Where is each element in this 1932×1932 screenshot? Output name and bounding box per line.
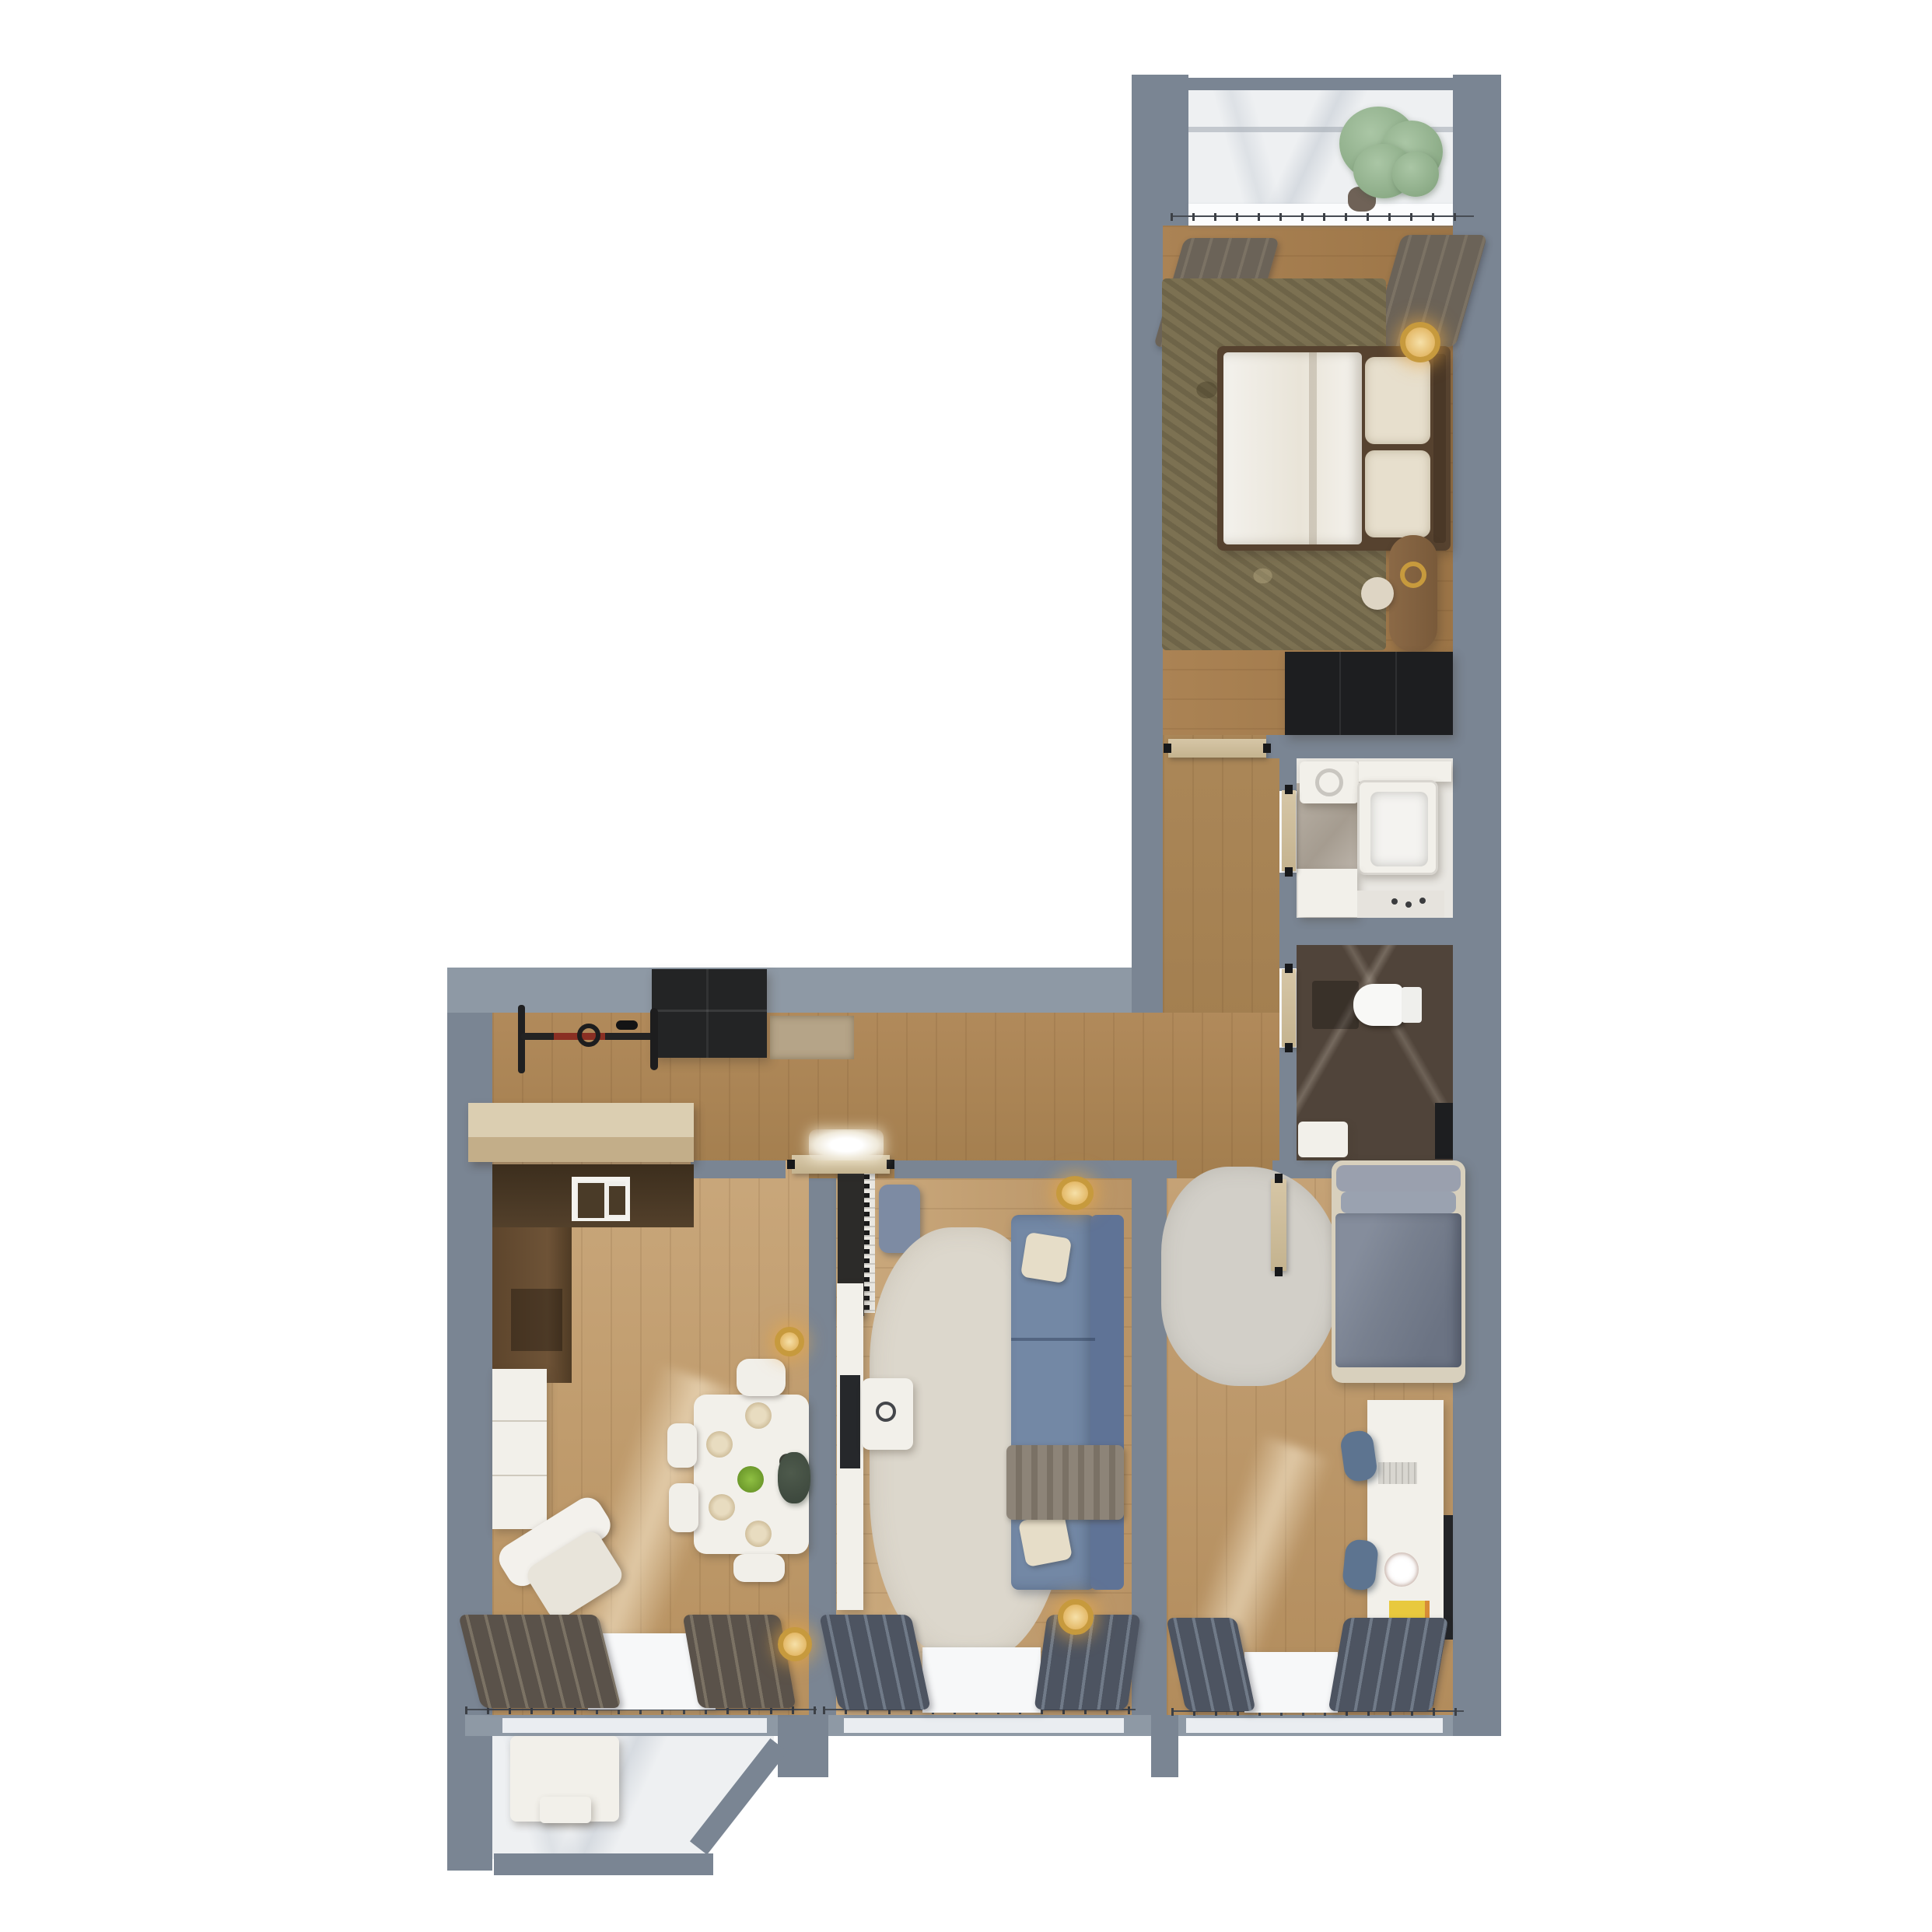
plate [709,1494,735,1521]
drawer-line [492,1475,547,1476]
desk-keyboard [1378,1462,1417,1484]
cooktop-pane [609,1186,625,1215]
bench-top [468,1103,694,1137]
balcony-bench-seat [540,1797,591,1823]
window-sill-bedroom2 [1244,1652,1338,1713]
wardrobe-seam [1339,652,1341,735]
faucet [1419,898,1426,904]
wall-bedroom1-south [1266,735,1453,758]
bathtub [1357,780,1438,875]
door-hinge [1285,964,1293,973]
wc-cabinet [1435,1103,1453,1159]
bed-headboard [1433,354,1446,543]
door-hinge [1275,1267,1283,1276]
door-bedroom2 [1271,1179,1286,1271]
plate [745,1521,772,1547]
washing-machine [1300,761,1359,803]
cabinet-seam [706,969,709,1058]
pendant-lamp-living [1056,1176,1094,1210]
vanity-stool [1361,577,1394,610]
table-decor [876,1402,896,1422]
floor-lamp-kitchen [778,1627,812,1661]
faucet [1405,901,1412,908]
coffee-table [862,1378,913,1450]
cooktop [572,1177,630,1221]
curtains-kitchen-right [682,1615,796,1708]
curtain-rail-bedroom1 [1171,213,1474,221]
plant-leaves [1392,152,1439,197]
drawer-line [492,1420,547,1422]
door-hinge [787,1160,795,1169]
shoe-bench [468,1103,694,1162]
table-plant [737,1466,764,1493]
bed-pillow [1365,357,1430,444]
floor-plan-canvas [0,0,1932,1932]
plate [745,1402,772,1429]
floor-lamp-living [1058,1599,1094,1635]
dining-foliage [778,1452,810,1503]
doormat [770,1016,854,1059]
curtains-bedroom2-right [1328,1618,1448,1711]
window-living [844,1718,1124,1733]
wardrobe-bedroom1 [1285,652,1453,735]
double-bed [1217,346,1451,551]
door-hinge [1285,1043,1293,1052]
bed2-duvet [1335,1213,1461,1367]
vanity-desk [1389,535,1437,652]
door-bedroom1 [1168,739,1266,758]
bathroom-cabinet [1298,869,1357,917]
door-hinge [1263,744,1271,753]
wc-sink [1298,1122,1348,1157]
bed-duvet [1223,352,1362,544]
wall-pillar-living-bedroom2 [1151,1715,1178,1777]
window-bedroom2 [1186,1718,1443,1733]
wardrobe-seam [1395,652,1397,735]
bike-pedals [577,1024,600,1047]
wall-mounted-bicycle [506,1002,670,1087]
sofa-pillow [1020,1232,1072,1283]
bed-pillow [1365,450,1430,537]
cooktop-pane [578,1183,604,1218]
piano-black-keys [864,1174,870,1310]
cabinet-dark-panel [511,1289,562,1351]
sofa-back [1090,1215,1124,1590]
kitchen-tall-cabinet [492,1227,572,1383]
dining-chair [733,1554,785,1582]
bed2-headboard [1336,1165,1461,1192]
wall-balcony-bottom [494,1853,713,1875]
dining-chair [667,1423,697,1468]
hall-ceiling-lamp [809,1129,884,1160]
desk-bedroom2 [1367,1400,1444,1643]
door-hinge [1285,785,1293,794]
bed2-pillow [1341,1192,1456,1213]
pendant-lamp-dining [775,1327,804,1356]
single-bed [1332,1160,1465,1383]
wc-floor-recess [1312,981,1359,1029]
curtains-kitchen-left [458,1615,621,1708]
sofa-throw-blanket [1006,1445,1124,1520]
vanity-mirror-ring [1400,562,1426,588]
sofa [1011,1215,1124,1590]
bike-seat [616,1020,638,1030]
bike-rear-wheel [650,1008,658,1070]
wall-loggia-top [1188,78,1453,90]
bathtub-basin [1370,792,1428,866]
bathroom-counter [1359,761,1451,782]
wall-loggia-left-column [1132,75,1188,226]
tv [840,1375,860,1468]
wall-corridor-bath-c [1279,1048,1297,1160]
toilet [1353,984,1403,1026]
wall-pillar-kitchen-living [778,1715,828,1777]
bench-front [468,1137,694,1162]
door-bathroom [1282,790,1296,871]
kitchen-base-cabinet [492,1369,547,1529]
dining-chair [737,1359,786,1396]
bedside-lamp [1400,322,1440,362]
desk-bowl [1384,1552,1419,1587]
door-hinge [1285,867,1293,877]
sofa-pillow [1018,1513,1073,1567]
door-hinge [1275,1174,1283,1183]
sofa-seam [1011,1338,1095,1341]
door-hinge [887,1160,894,1169]
door-wc [1282,969,1296,1047]
window-sill-living [922,1647,1041,1713]
plate [706,1431,733,1458]
bedroom2-rug [1161,1167,1342,1386]
dining-chair [669,1483,698,1532]
bathroom-sink-counter [1357,891,1444,918]
door-hinge [1164,744,1171,753]
washer-door [1315,768,1343,796]
window-kitchen [502,1718,767,1733]
wall-bath-wc [1297,918,1453,945]
faucet [1391,898,1398,905]
toilet-tank [1402,987,1422,1023]
wall-corridor-bath-b [1279,873,1297,968]
wall-hall-south-b [894,1160,1177,1178]
wall-hall-south-a [691,1160,786,1178]
bed-duvet-fold [1309,352,1317,544]
